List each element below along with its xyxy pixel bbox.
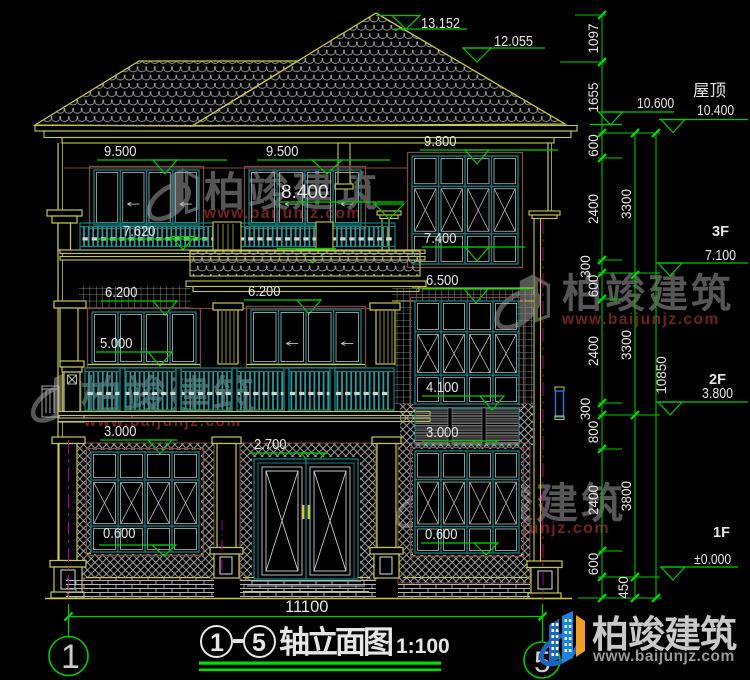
svg-text:0.600: 0.600 (425, 526, 458, 543)
svg-text:800: 800 (586, 421, 601, 444)
svg-text:9.500: 9.500 (266, 143, 299, 160)
svg-text:9.500: 9.500 (104, 143, 137, 160)
svg-text:±0.000: ±0.000 (694, 552, 731, 568)
svg-text:2400: 2400 (586, 194, 601, 224)
svg-text:0.600: 0.600 (103, 525, 136, 542)
svg-text:屋顶: 屋顶 (693, 82, 726, 100)
svg-text:10.400: 10.400 (697, 103, 734, 119)
svg-text:3.800: 3.800 (702, 386, 733, 402)
svg-text:3.000: 3.000 (426, 424, 459, 441)
svg-text:6.200: 6.200 (105, 284, 138, 301)
svg-text:www.baijunjz.com: www.baijunjz.com (203, 205, 362, 222)
svg-text:11100: 11100 (285, 598, 328, 616)
svg-text:8.400: 8.400 (281, 182, 329, 203)
svg-text:600: 600 (586, 275, 601, 298)
svg-text:3300: 3300 (619, 189, 634, 219)
svg-text:轴立面图: 轴立面图 (279, 625, 392, 660)
svg-text:3300: 3300 (619, 330, 634, 360)
svg-text:6.200: 6.200 (248, 283, 281, 300)
svg-text:2400: 2400 (586, 336, 601, 366)
svg-text:450: 450 (616, 576, 631, 599)
svg-text:600: 600 (586, 134, 601, 157)
svg-text:5: 5 (252, 629, 266, 657)
svg-text:300: 300 (578, 398, 593, 421)
svg-text:10850: 10850 (654, 356, 669, 394)
svg-text:3F: 3F (712, 224, 729, 240)
svg-text:9.800: 9.800 (424, 133, 457, 150)
svg-text:1655: 1655 (586, 82, 601, 112)
svg-text:1097: 1097 (586, 23, 601, 53)
svg-text:7.400: 7.400 (424, 230, 457, 247)
svg-text:300: 300 (578, 255, 593, 278)
svg-text:1F: 1F (713, 525, 730, 541)
svg-text:2400: 2400 (586, 485, 601, 515)
svg-text:3800: 3800 (619, 481, 634, 511)
svg-text:7.620: 7.620 (123, 223, 156, 240)
svg-text:3.000: 3.000 (104, 423, 137, 440)
svg-text:www.baijunjz.com: www.baijunjz.com (561, 311, 720, 328)
svg-text:600: 600 (586, 553, 601, 576)
svg-text:5.000: 5.000 (100, 335, 133, 352)
svg-text:1: 1 (210, 629, 224, 657)
svg-text:7.100: 7.100 (705, 248, 736, 264)
svg-text:www.baijunjz.com: www.baijunjz.com (592, 648, 735, 665)
svg-text:1: 1 (61, 638, 80, 676)
svg-text:10.600: 10.600 (637, 96, 674, 112)
svg-text:6.500: 6.500 (426, 272, 459, 289)
svg-text:1:100: 1:100 (396, 635, 450, 658)
svg-text:4.100: 4.100 (426, 379, 459, 396)
svg-text:2.700: 2.700 (254, 436, 287, 453)
